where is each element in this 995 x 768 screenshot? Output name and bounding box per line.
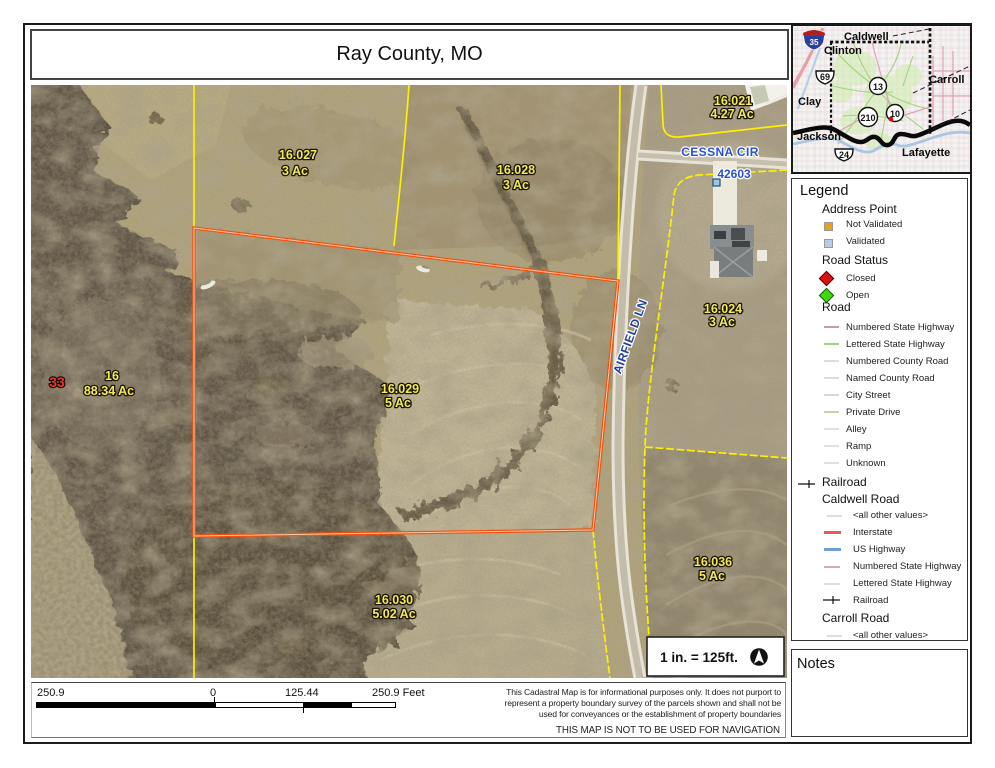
svg-text:4.27 Ac: 4.27 Ac [710, 107, 753, 121]
svg-text:16.028: 16.028 [497, 163, 535, 177]
svg-text:210: 210 [860, 113, 875, 123]
svg-text:13: 13 [873, 82, 883, 92]
svg-text:16.024: 16.024 [704, 302, 742, 316]
svg-text:69: 69 [820, 72, 830, 82]
svg-text:Jackson: Jackson [797, 131, 841, 143]
svg-text:24: 24 [839, 150, 849, 160]
svg-text:Carroll: Carroll [929, 74, 964, 86]
svg-text:5 Ac: 5 Ac [385, 396, 411, 410]
svg-text:CESSNA CIR: CESSNA CIR [681, 145, 759, 159]
svg-text:5.02 Ac: 5.02 Ac [372, 607, 415, 621]
svg-text:3 Ac: 3 Ac [709, 315, 735, 329]
svg-text:Caldwell: Caldwell [844, 31, 889, 43]
svg-text:Clay: Clay [798, 96, 822, 108]
svg-text:16.029: 16.029 [381, 382, 419, 396]
svg-text:16.027: 16.027 [279, 148, 317, 162]
svg-text:5 Ac: 5 Ac [699, 569, 725, 583]
svg-text:88.34 Ac: 88.34 Ac [84, 384, 134, 398]
svg-text:1 in. = 125ft.: 1 in. = 125ft. [660, 650, 738, 665]
svg-text:Clinton: Clinton [824, 45, 862, 57]
svg-text:3 Ac: 3 Ac [282, 164, 308, 178]
svg-text:35: 35 [810, 38, 819, 47]
svg-text:16.021: 16.021 [714, 94, 752, 108]
svg-text:16: 16 [105, 369, 119, 383]
svg-text:42603: 42603 [717, 167, 751, 181]
svg-text:Lafayette: Lafayette [902, 147, 950, 159]
svg-text:16.030: 16.030 [375, 593, 413, 607]
svg-text:3 Ac: 3 Ac [503, 178, 529, 192]
svg-text:33: 33 [49, 374, 65, 390]
svg-text:16.036: 16.036 [694, 555, 732, 569]
